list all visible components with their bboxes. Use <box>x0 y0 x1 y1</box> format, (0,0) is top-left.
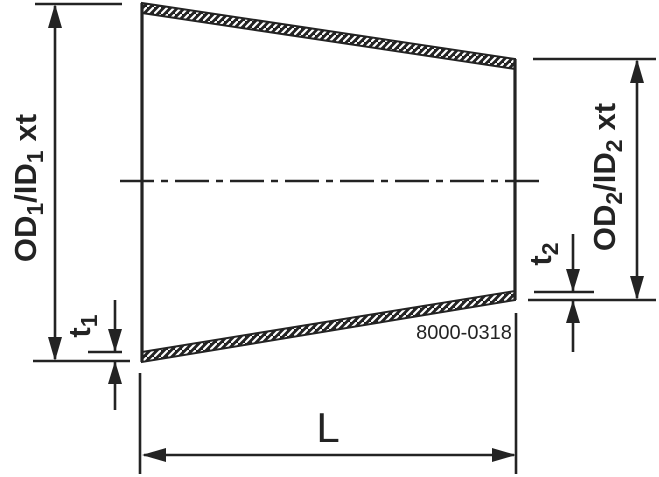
arrow-down-icon <box>48 337 62 361</box>
arrow-up-icon <box>108 361 122 384</box>
length-label: L <box>316 404 339 451</box>
od1-label: OD1/ID1xt <box>8 114 48 262</box>
od2-label: OD2/ID2xt <box>587 103 627 251</box>
od1-dimension: OD1/ID1xt <box>8 4 130 361</box>
arrow-right-icon <box>492 448 516 462</box>
arrow-up-icon <box>566 300 580 323</box>
reducer-body <box>142 3 515 362</box>
arrow-down-icon <box>566 269 580 292</box>
arrow-up-icon <box>48 4 62 28</box>
technical-drawing-concentric-reducer: OD1/ID1xt t1 OD2/ID2xt t2 <box>0 0 659 477</box>
part-number-label: 8000-0318 <box>416 322 512 344</box>
t2-label: t2 <box>523 242 563 265</box>
t1-dimension: t1 <box>62 300 122 410</box>
arrow-left-icon <box>142 448 166 462</box>
t1-label: t1 <box>62 314 102 337</box>
reducer-drawing-canvas: OD1/ID1xt t1 OD2/ID2xt t2 <box>0 0 659 477</box>
arrow-down-icon <box>108 329 122 352</box>
top-wall-section <box>142 3 515 69</box>
t2-dimension: t2 <box>523 234 594 352</box>
arrow-up-icon <box>630 59 644 83</box>
arrow-down-icon <box>630 276 644 300</box>
